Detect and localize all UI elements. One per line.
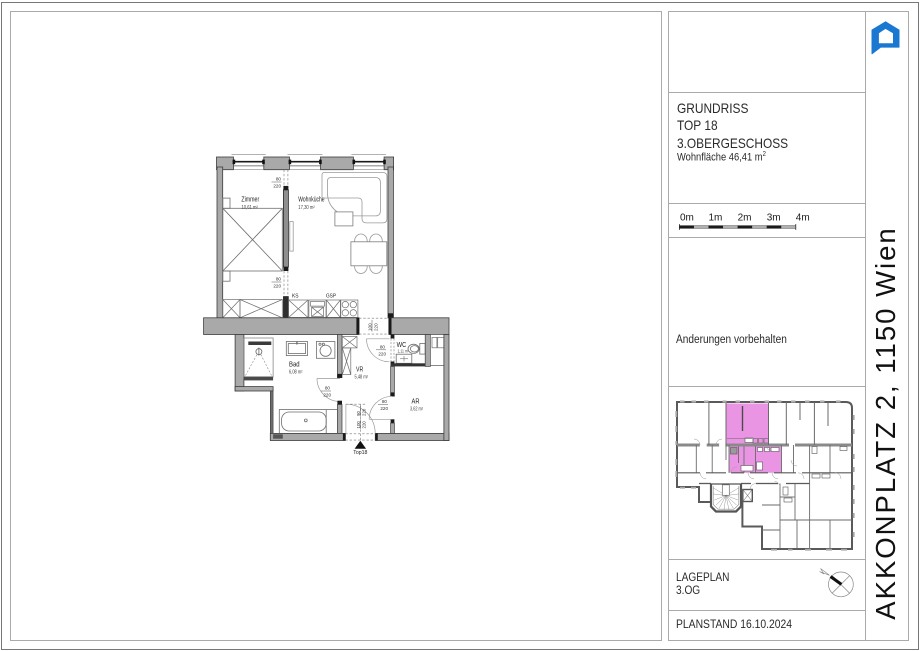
svg-text:220: 220 [273, 284, 281, 289]
svg-text:KS: KS [292, 294, 299, 300]
svg-text:Bad: Bad [289, 360, 300, 369]
svg-text:2m: 2m [738, 213, 752, 224]
svg-text:Wohnküche: Wohnküche [298, 195, 324, 204]
svg-text:VR: VR [356, 365, 363, 374]
svg-text:220: 220 [361, 408, 366, 416]
svg-text:GSP: GSP [326, 294, 336, 300]
svg-text:AR: AR [412, 397, 420, 406]
svg-text:3,62 m²: 3,62 m² [410, 407, 423, 413]
svg-text:5,48 m²: 5,48 m² [355, 375, 369, 381]
svg-text:220: 220 [273, 184, 281, 189]
svg-text:80: 80 [325, 386, 331, 391]
svg-text:100: 100 [356, 421, 361, 429]
svg-text:6,08 m²: 6,08 m² [289, 370, 303, 376]
svg-text:90: 90 [356, 411, 361, 416]
svg-text:80: 80 [276, 277, 282, 282]
svg-text:4m: 4m [796, 213, 810, 224]
svg-text:80: 80 [276, 177, 282, 182]
svg-text:100: 100 [367, 323, 372, 331]
svg-text:80: 80 [380, 345, 386, 350]
svg-text:220: 220 [373, 323, 378, 331]
svg-text:220: 220 [361, 421, 366, 429]
svg-text:1m: 1m [709, 213, 723, 224]
svg-text:220: 220 [323, 393, 331, 398]
svg-text:80: 80 [382, 399, 388, 404]
svg-text:220: 220 [378, 351, 386, 356]
svg-text:3m: 3m [767, 213, 781, 224]
svg-text:220: 220 [380, 406, 388, 411]
svg-text:17,30 m²: 17,30 m² [298, 205, 315, 211]
svg-text:Top18: Top18 [353, 450, 367, 456]
svg-text:Zimmer: Zimmer [241, 195, 259, 204]
svg-text:0m: 0m [680, 213, 694, 224]
